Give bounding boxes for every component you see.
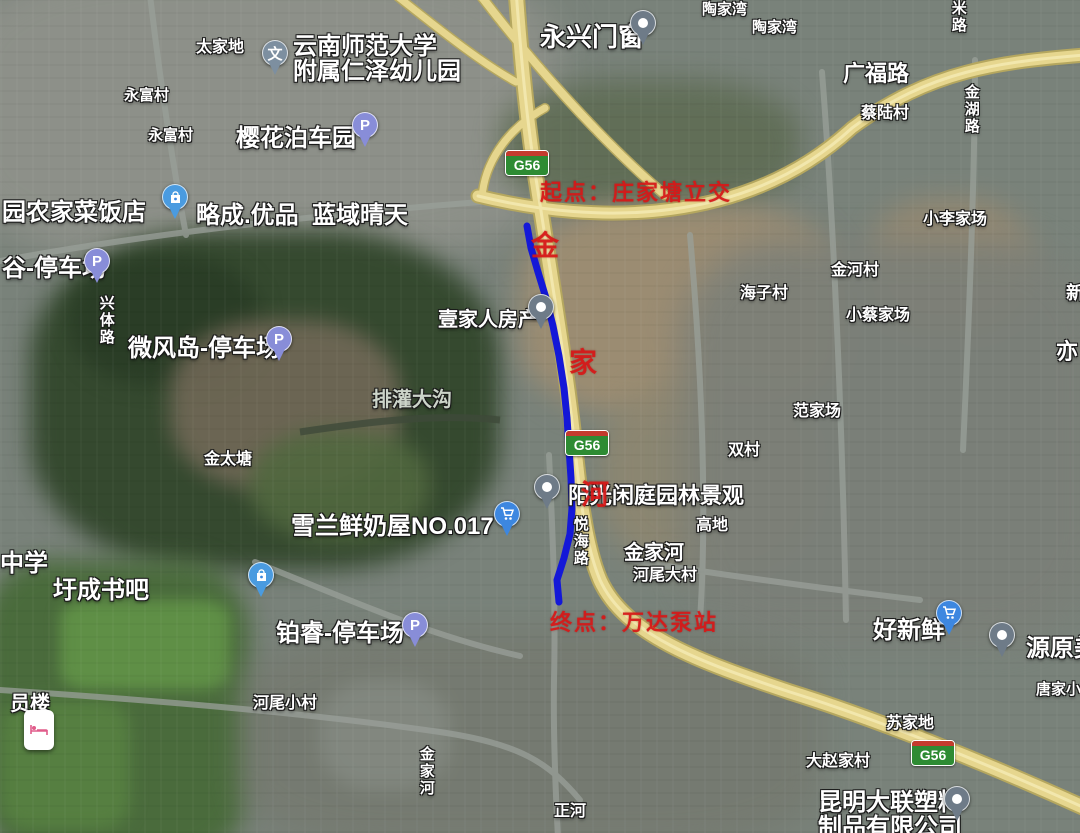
urban-texture-overlay (0, 0, 1080, 833)
map-label[interactable]: 蓝域晴天 (312, 203, 408, 228)
map-label[interactable]: 略成.优品 (196, 203, 299, 228)
route-start-annotation: 起点：庄家塘立交 (540, 175, 732, 207)
map-label[interactable]: 小李家场 (923, 212, 987, 229)
pin-tail (409, 635, 421, 647)
map-label[interactable]: 广福路 (843, 62, 909, 85)
map-label[interactable]: 中学 (0, 551, 48, 576)
map-label[interactable]: 高地 (696, 518, 728, 535)
map-label[interactable]: 金湖路 (963, 84, 979, 135)
cart-pin[interactable] (936, 600, 962, 638)
map-label[interactable]: 亦 (1056, 340, 1078, 363)
map-label[interactable]: 大赵家村 (806, 754, 870, 771)
poi-dot-icon (638, 18, 648, 28)
map-label[interactable]: 云南师范大学 附属仁泽幼儿园 (293, 34, 461, 84)
map-label[interactable]: 金家河 (624, 543, 684, 564)
satellite-map[interactable]: 太家地云南师范大学 附属仁泽幼儿园樱花泊车园永富村永富村永兴门窗陶家湾陶家湾广福… (0, 0, 1080, 833)
poi-pin[interactable] (989, 622, 1015, 660)
pin-tail (637, 33, 649, 45)
map-label[interactable]: 永富村 (124, 88, 169, 104)
expressway-shield: G56 (911, 740, 955, 766)
map-label[interactable]: 陶家湾 (702, 2, 747, 18)
map-label[interactable]: 蔡陆村 (861, 106, 909, 123)
pin-tail (501, 524, 513, 536)
map-label[interactable]: 金河村 (831, 263, 879, 280)
map-label[interactable]: 昆明大联塑料 制品有限公司 (818, 790, 962, 833)
map-label[interactable]: 雪兰鲜奶屋NO.017 (291, 514, 494, 539)
poi-dot-icon (952, 794, 962, 804)
map-label[interactable]: 铂睿-停车场 (276, 621, 404, 646)
poi-dot-icon (542, 482, 552, 492)
cart-pin[interactable] (494, 501, 520, 539)
map-label[interactable]: 新 (1066, 284, 1080, 303)
poi-dot-icon (997, 630, 1007, 640)
map-label[interactable]: 好新鲜 (873, 618, 945, 643)
hotel-badge[interactable] (24, 710, 54, 750)
parking-pin[interactable]: P (402, 612, 428, 650)
shopping-bag-icon (255, 569, 268, 582)
parking-pin[interactable]: P (266, 326, 292, 364)
pin-tail (535, 317, 547, 329)
pin-tail (951, 809, 963, 821)
pin-tail (91, 271, 103, 283)
map-label[interactable]: 海子村 (740, 286, 788, 303)
map-label[interactable]: 河尾大村 (633, 568, 697, 585)
poi-pin[interactable] (528, 294, 554, 332)
shopping-cart-icon (942, 606, 957, 620)
map-label[interactable]: 排灌大沟 (372, 390, 452, 411)
map-label[interactable]: 悦海路 (572, 516, 588, 567)
map-label[interactable]: 陶家湾 (752, 20, 797, 36)
map-label[interactable]: 圩成书吧 (53, 578, 149, 603)
bag-pin[interactable] (162, 184, 188, 222)
map-label[interactable]: 范家场 (793, 404, 841, 421)
map-label[interactable]: 壹家人房产 (438, 310, 538, 331)
poi-pin[interactable] (534, 474, 560, 512)
map-label[interactable]: 永兴门窗 (540, 24, 644, 51)
map-label[interactable]: 唐家小 (1036, 682, 1080, 698)
route-end-annotation: 终点：万达泵站 (550, 605, 718, 637)
expressway-shield: G56 (505, 150, 549, 176)
map-label[interactable]: 金太塘 (204, 452, 252, 469)
map-label[interactable]: 兴体路 (98, 295, 114, 346)
river-name-annotation: 金 (531, 224, 561, 264)
map-label[interactable]: 太家地 (196, 40, 244, 57)
school-pin[interactable]: 文 (262, 40, 288, 78)
hotel-bed-icon (30, 722, 48, 738)
shopping-cart-icon (500, 507, 515, 521)
terrain-field-bright2 (0, 700, 130, 830)
poi-pin[interactable] (944, 786, 970, 824)
pin-tail (359, 135, 371, 147)
bag-pin[interactable] (248, 562, 274, 600)
pin-tail (269, 63, 281, 75)
pin-tail (273, 349, 285, 361)
expressway-shield: G56 (565, 430, 609, 456)
poi-pin[interactable] (630, 10, 656, 48)
map-label[interactable]: 河尾小村 (253, 696, 317, 713)
pin-tail (943, 623, 955, 635)
map-label[interactable]: 正河 (554, 804, 586, 821)
map-label[interactable]: 源原美 (1026, 636, 1080, 661)
terrain-dirt-center (520, 205, 840, 415)
river-name-annotation: 家 (569, 341, 599, 381)
pin-tail (541, 497, 553, 509)
map-label[interactable]: 永富村 (148, 128, 193, 144)
map-label[interactable]: 园农家菜饭店 (2, 200, 146, 225)
parking-pin[interactable]: P (84, 248, 110, 286)
map-label[interactable]: 小蔡家场 (846, 308, 910, 325)
map-label[interactable]: 双村 (728, 443, 760, 460)
map-label[interactable]: 米路 (950, 0, 966, 34)
route-line (527, 226, 572, 602)
map-label[interactable]: 樱花泊车园 (236, 126, 356, 151)
pin-tail (255, 585, 267, 597)
map-label[interactable]: 微风岛-停车场 (128, 336, 280, 361)
poi-dot-icon (536, 302, 546, 312)
terrain-urban-bottom (240, 630, 820, 833)
pin-tail (169, 207, 181, 219)
pin-tail (996, 645, 1008, 657)
parking-pin[interactable]: P (352, 112, 378, 150)
map-label[interactable]: 金家河 (418, 746, 434, 797)
route-layer (0, 0, 1080, 833)
shopping-bag-icon (169, 191, 182, 204)
terrain-field-bright (60, 600, 230, 690)
river-name-annotation: 河 (581, 473, 611, 513)
roads-layer (0, 0, 1080, 833)
map-label[interactable]: 苏家地 (886, 716, 934, 733)
